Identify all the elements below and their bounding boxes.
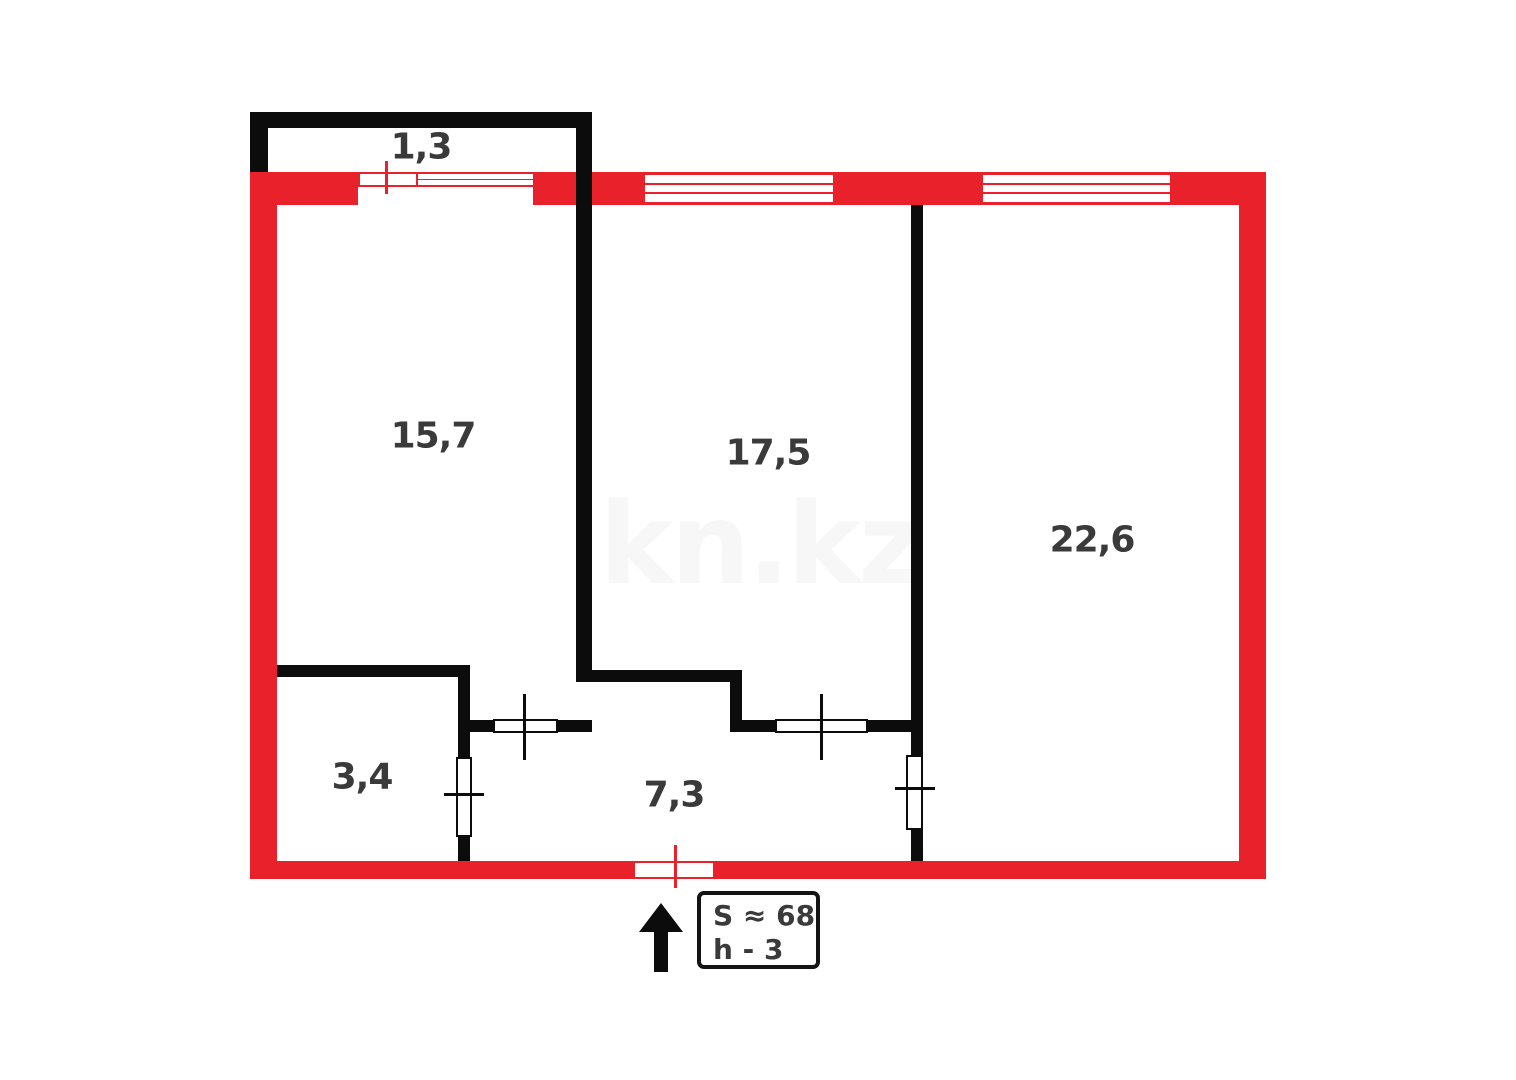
- door-small-room-tick: [444, 793, 484, 796]
- wall-left-middle-rooms: [576, 112, 592, 682]
- door-middle-room-tick: [820, 694, 823, 760]
- total-area-text: S ≈ 68: [713, 899, 816, 933]
- window-middle-room: [645, 172, 833, 205]
- balcony-door-tick: [385, 161, 388, 194]
- window-right-room: [983, 172, 1170, 205]
- right-room-area-label: 22,6: [1050, 520, 1135, 561]
- balcony-wall-left: [250, 112, 268, 172]
- outer-wall-right: [1239, 172, 1266, 879]
- left-room-area-label: 15,7: [391, 416, 476, 457]
- outer-wall-bottom: [250, 861, 1266, 879]
- small-room-area-label: 3,4: [332, 757, 393, 798]
- door-right-room: [906, 755, 923, 830]
- door-small-room: [456, 757, 472, 837]
- wall-small-room-top: [277, 665, 470, 677]
- floorplan-canvas: kn.kz 1,3 15,7 17,5 22,6 3,4: [0, 0, 1516, 1080]
- hallway-area-label: 7,3: [644, 775, 705, 816]
- outer-wall-left: [250, 172, 277, 879]
- balcony-window: [418, 172, 533, 187]
- middle-room-area-label: 17,5: [726, 433, 811, 474]
- door-left-room-tick: [523, 694, 526, 760]
- watermark: kn.kz: [599, 480, 920, 610]
- door-right-room-tick: [895, 787, 935, 790]
- balcony-area-label: 1,3: [391, 127, 452, 168]
- entrance-door-tick: [674, 845, 677, 888]
- ceiling-height-text: h - 3: [713, 933, 816, 967]
- info-box: S ≈ 68 h - 3: [697, 891, 820, 969]
- balcony-door: [358, 172, 418, 187]
- wall-middle-room-bottom: [576, 670, 742, 682]
